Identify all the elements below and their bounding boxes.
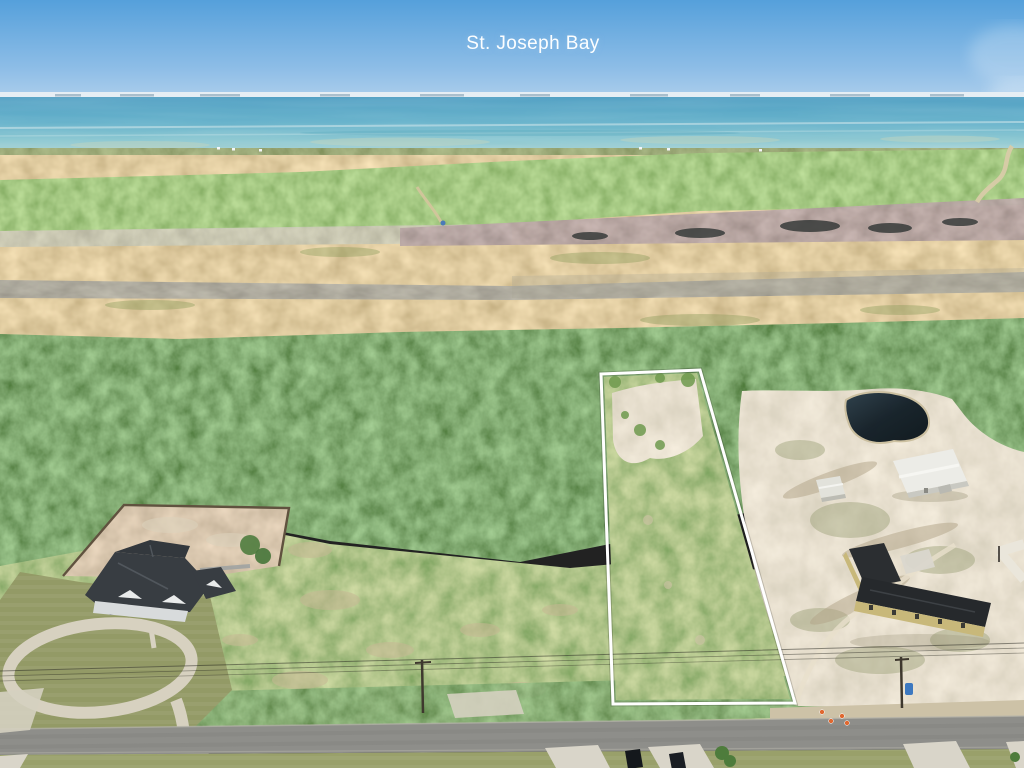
vehicle-dot (441, 221, 446, 226)
blue-barrel (905, 683, 913, 695)
aerial-listing-photo: St. Joseph Bay (0, 0, 1024, 768)
bay-water (0, 97, 1024, 153)
bay-label: St. Joseph Bay (0, 33, 1024, 55)
parked-car (625, 749, 643, 768)
marsh-zone (0, 146, 1024, 340)
